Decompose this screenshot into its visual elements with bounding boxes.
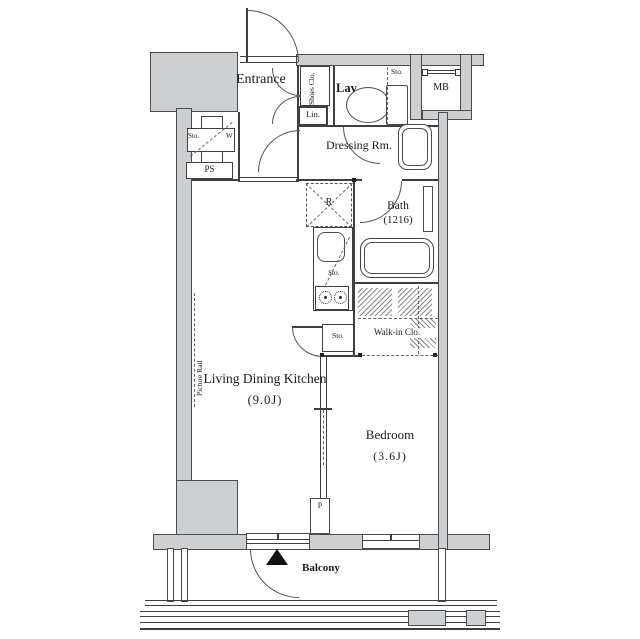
hall-sill-top: [240, 177, 298, 178]
mb-door-line-top: [424, 70, 458, 71]
railing-block-left: [408, 610, 446, 626]
balcony-edge-line-1: [145, 600, 497, 601]
wall-bottom-left-block: [176, 480, 238, 542]
walkin-hanger-hatch-right: [398, 288, 432, 316]
wall-right-main: [438, 112, 448, 550]
stove-burner-right: [334, 291, 347, 304]
walkin-opening-dashed: [362, 355, 438, 356]
bath-shelf: [423, 186, 433, 232]
railing-block-right: [466, 610, 486, 626]
wall-end-marker-3: [358, 353, 362, 357]
pipe-duct-label: P: [310, 502, 330, 511]
storage-door-arc: [292, 327, 323, 357]
railing-line-2: [140, 616, 500, 617]
balcony-door-mullion: [277, 533, 279, 540]
balcony-post-right: [438, 548, 446, 602]
ldk-storage-label: Sto.: [322, 332, 354, 340]
wall-top-band: [296, 54, 484, 66]
balcony-door-rail-2: [246, 543, 310, 544]
lav-storage-label: Sto.: [391, 68, 403, 76]
wall-ldk-top: [192, 179, 238, 181]
balcony-edge-line-2: [145, 605, 497, 606]
toilet-bowl-icon: [346, 87, 390, 123]
wall-lav-left: [333, 66, 335, 126]
railing-line-1: [140, 611, 500, 612]
pipe-shaft-label: PS: [186, 165, 233, 175]
stove-burner-left: [319, 291, 332, 304]
lav-storage-dashed: [387, 67, 388, 125]
room-label-dressing: Dressing Rm.: [326, 139, 392, 152]
bedroom-window-mullion: [390, 534, 392, 541]
bathtub-inner: [364, 242, 430, 274]
shoes-door-arc-lower: [272, 96, 300, 124]
wall-top-left-block: [150, 52, 238, 112]
picture-rail-label: Picture Rail: [196, 326, 204, 396]
railing-line-3: [140, 622, 500, 623]
kitchen-sink-icon: [317, 232, 345, 262]
room-label-bath-size: (1216): [368, 214, 428, 226]
balcony-door-arc: [250, 549, 299, 598]
dressing-door-arc: [258, 130, 300, 172]
washbasin-inner: [402, 128, 428, 166]
mb-door-line-bottom: [424, 73, 458, 74]
toilet-tank-icon: [386, 85, 408, 125]
washer-label: W: [226, 133, 233, 141]
balcony-post-left-inner: [181, 548, 188, 602]
linen-label: Lin.: [298, 110, 328, 119]
wall-hall-left: [238, 112, 240, 182]
wall-dressing-bottom-right: [402, 179, 438, 181]
room-label-ldk-size: (9.0J): [200, 394, 330, 408]
wall-bath-walkin-divider: [355, 282, 438, 284]
room-label-ldk: Living Dining Kitchen: [200, 372, 330, 387]
balcony-post-left-outer: [167, 548, 174, 602]
room-label-walkin: Walk-in Clo.: [358, 328, 436, 338]
railing-line-4: [140, 628, 500, 630]
fridge-label: R: [306, 197, 352, 209]
kitchen-storage-label: Sto.: [328, 269, 339, 277]
hall-sill-bottom: [240, 181, 298, 182]
partition-tick: [314, 408, 332, 410]
wall-walkin-bottom: [324, 355, 362, 357]
wall-mb-divider: [410, 54, 422, 120]
walkin-dashed-vertical: [418, 286, 419, 354]
storage-label-left: Sto.: [188, 133, 199, 141]
mb-door-cap-left: [422, 69, 428, 76]
room-label-bedroom-size: (3.6J): [345, 450, 435, 463]
entrance-door-arc: [247, 10, 299, 62]
walkin-dashed-horizontal: [358, 318, 438, 319]
wall-end-marker-1: [352, 178, 356, 182]
partition-sliding-door-dashed: [323, 410, 324, 465]
room-label-bedroom: Bedroom: [345, 428, 435, 442]
mb-door-cap-right: [455, 69, 461, 76]
shoes-door-arc-upper: [272, 68, 300, 96]
floor-plan: Entrance Shoes Clo. Lin. Lav. Sto. MB Dr…: [0, 0, 640, 639]
wall-end-marker-4: [433, 353, 437, 357]
wall-end-marker-2: [320, 353, 324, 357]
walkin-hanger-hatch-left: [358, 288, 392, 316]
shoes-closet-label: Shoes Clo.: [308, 68, 316, 105]
room-label-bath: Bath: [368, 200, 428, 213]
room-label-mb: MB: [422, 82, 460, 93]
room-label-balcony: Balcony: [302, 562, 340, 574]
entrance-frame-bottom: [240, 62, 298, 63]
